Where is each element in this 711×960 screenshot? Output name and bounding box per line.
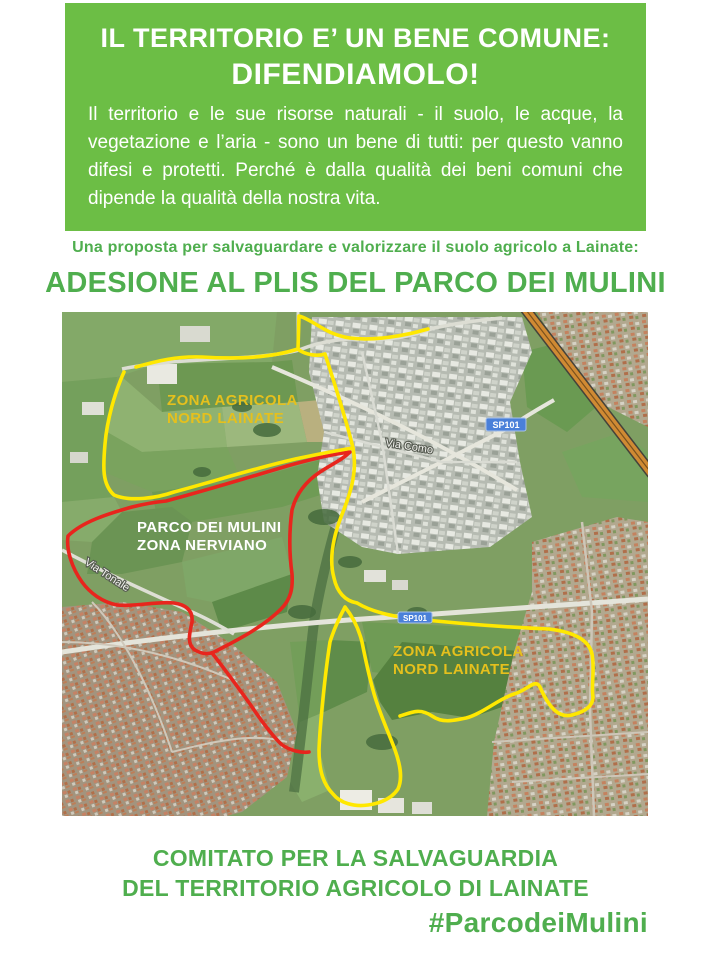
hashtag: #ParcodeiMulini [429,907,648,939]
committee-name: COMITATO PER LA SALVAGUARDIA DEL TERRITO… [0,843,711,903]
satellite-map-image: Via Como Via Tonale SP101 SP101 ZONA AGR… [62,312,648,816]
sp101-badge-top-label: SP101 [492,420,519,430]
committee-name-line1: COMITATO PER LA SALVAGUARDIA [0,843,711,873]
parco-label-line2: ZONA NERVIANO [137,537,267,554]
satellite-map: Via Como Via Tonale SP101 SP101 ZONA AGR… [62,312,648,816]
sp101-badge-bottom: SP101 [398,612,432,623]
sp101-badge-top: SP101 [486,418,526,431]
proposal-subtitle: Una proposta per salvaguardare e valoriz… [0,239,711,257]
parco-label-line1: PARCO DEI MULINI [137,519,281,536]
zona-agricola-bottom-label-line2: NORD LAINATE [393,661,510,678]
main-title: ADESIONE AL PLIS DEL PARCO DEI MULINI [0,267,711,300]
zona-agricola-top-label-line1: ZONA AGRICOLA [167,392,298,409]
banner-body-text: Il territorio e le sue risorse naturali … [88,101,623,213]
banner-title-line1: IL TERRITORIO E’ UN BENE COMUNE: [65,23,646,54]
zona-agricola-bottom-label-line1: ZONA AGRICOLA [393,643,524,660]
committee-name-line2: DEL TERRITORIO AGRICOLO DI LAINATE [0,873,711,903]
header-banner: IL TERRITORIO E’ UN BENE COMUNE: DIFENDI… [65,3,646,231]
zona-agricola-top-label-line2: NORD LAINATE [167,410,284,427]
banner-title-line2: DIFENDIAMOLO! [65,58,646,92]
sp101-badge-bottom-label: SP101 [403,614,428,623]
